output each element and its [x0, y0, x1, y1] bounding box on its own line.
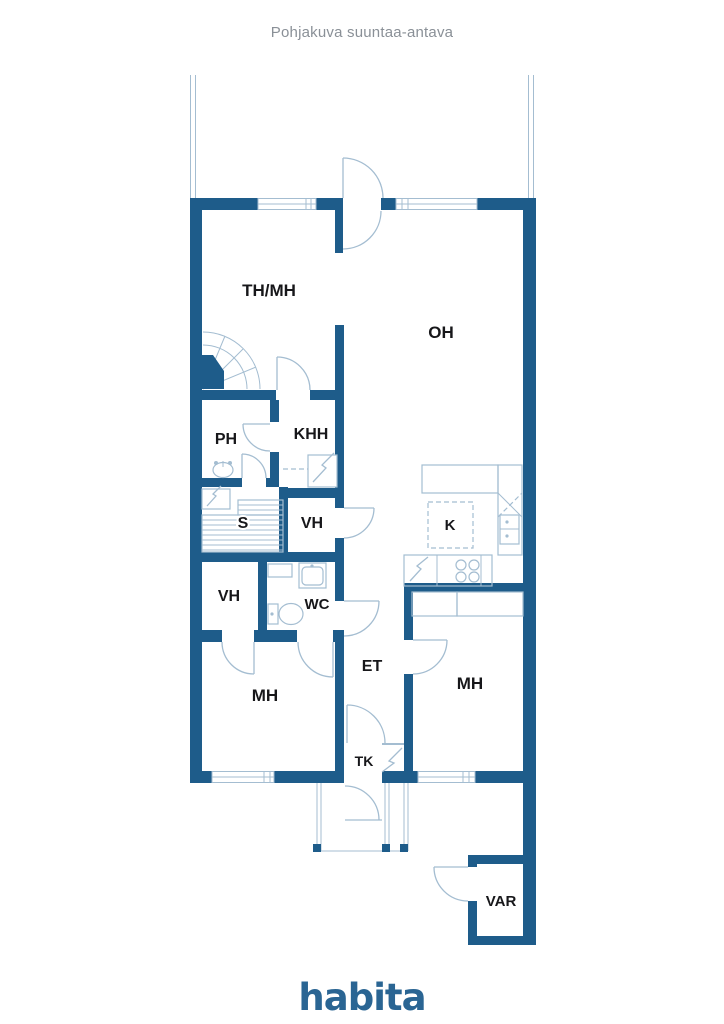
wc-shelf-icon — [268, 564, 292, 577]
ph-door-icon — [243, 424, 270, 451]
vh-lower-door-icon — [222, 642, 254, 674]
window-bottom-right-icon — [418, 772, 475, 783]
ph-sink-icon — [213, 461, 233, 478]
room-label-mh-right: MH — [457, 674, 483, 693]
window-top-right-icon — [396, 199, 477, 210]
room-label-mh-left: MH — [252, 686, 278, 705]
room-label-wc: WC — [305, 596, 330, 613]
var-door-icon — [434, 867, 468, 901]
habita-logo: habita — [0, 976, 724, 1019]
room-label-var: VAR — [486, 893, 517, 910]
room-label-vh-lower: VH — [218, 588, 240, 605]
room-label-k: K — [445, 517, 456, 534]
floorplan-drawing: TH/MH OH PH KHH S VH K VH WC ET MH MH TK… — [0, 0, 724, 1024]
mh-left-door-icon — [298, 642, 333, 677]
kitchen-counter-icon — [404, 465, 522, 586]
sauna-door-icon — [242, 454, 266, 478]
mh-right-door-icon — [413, 640, 447, 674]
room-label-et: ET — [362, 658, 383, 675]
front-door-icon — [345, 786, 382, 820]
tk-door-icon — [347, 705, 404, 744]
fireplace-icon — [196, 332, 260, 389]
sauna-heater-icon — [202, 486, 230, 509]
room-label-vh-upper: VH — [301, 515, 323, 532]
room-label-oh: OH — [428, 323, 454, 342]
terrace-rail-lines — [191, 75, 534, 198]
window-bottom-left-icon — [212, 772, 274, 783]
room-label-tk: TK — [355, 753, 374, 769]
outer-walls — [190, 197, 536, 945]
dishwasher-icon — [410, 557, 428, 581]
fridge-icon — [500, 515, 519, 544]
electrical-panel-icon — [382, 748, 402, 772]
stove-burners-icon — [456, 560, 479, 582]
room-label-s: S — [238, 515, 249, 532]
window-top-left-icon — [258, 199, 316, 210]
room-label-khh: KHH — [294, 426, 329, 443]
closet-icons — [412, 592, 523, 616]
thmh-door-icon — [277, 357, 310, 390]
vh-upper-door-icon — [344, 508, 374, 538]
floorplan-page: Pohjakuva suuntaa-antava — [0, 0, 724, 1024]
washing-machine-icon — [283, 453, 337, 487]
wc-sink-icon — [299, 563, 326, 588]
room-label-th-mh: TH/MH — [242, 281, 296, 300]
wc-door-icon — [344, 601, 379, 636]
room-label-ph: PH — [215, 431, 237, 448]
toilet-icon — [268, 604, 303, 625]
porch-icon — [313, 783, 408, 852]
